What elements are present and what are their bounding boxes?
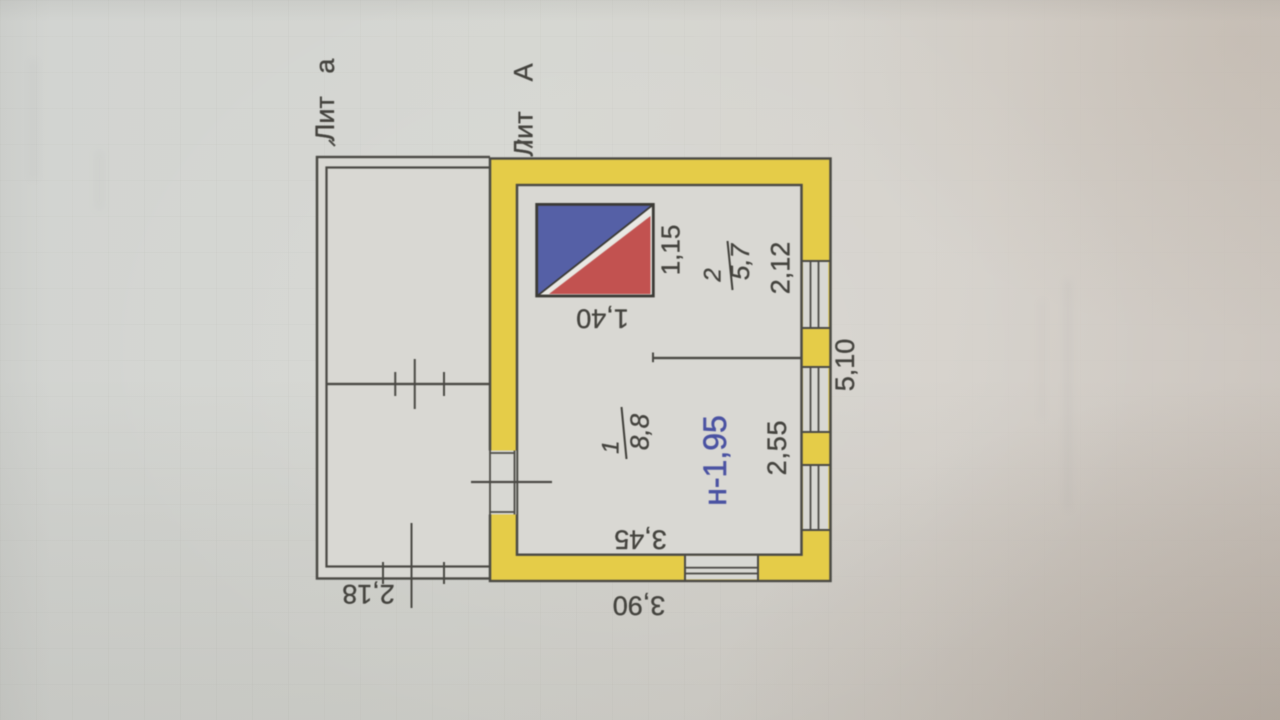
svg-text:2,12: 2,12	[766, 242, 796, 295]
svg-text:5,10: 5,10	[830, 339, 860, 392]
svg-text:3,90: 3,90	[613, 590, 666, 620]
svg-text:5,7: 5,7	[725, 242, 755, 280]
svg-text:2,55: 2,55	[762, 420, 792, 476]
svg-text:1: 1	[598, 441, 625, 454]
svg-text:2,18: 2,18	[342, 579, 395, 609]
svg-text:2: 2	[700, 268, 727, 282]
svg-text:1,40: 1,40	[576, 303, 629, 333]
svg-text:8,8: 8,8	[625, 413, 655, 450]
svg-text:н-1,95: н-1,95	[697, 415, 733, 506]
svg-text:1,15: 1,15	[656, 225, 686, 276]
svg-text:3,45: 3,45	[614, 525, 667, 555]
svg-text:Лит а: Лит а	[310, 58, 340, 142]
